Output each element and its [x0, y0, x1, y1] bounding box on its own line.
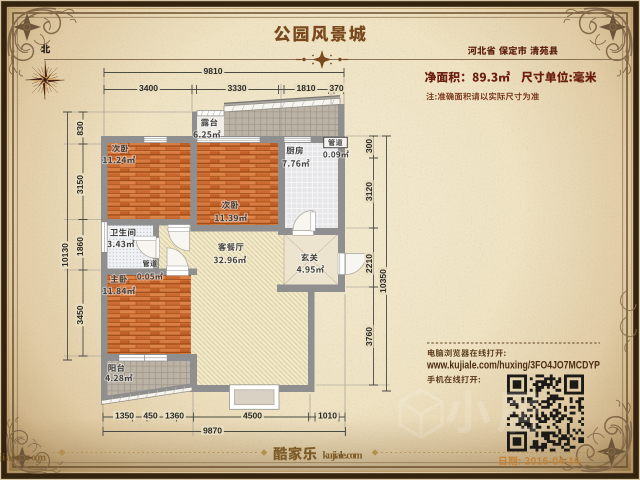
svg-text:300: 300	[364, 139, 374, 154]
svg-text:4500: 4500	[243, 410, 262, 420]
svg-text:1360: 1360	[165, 410, 184, 420]
svg-text:kujiale.com: kujiale.com	[323, 451, 363, 462]
svg-text:3150: 3150	[75, 175, 85, 194]
svg-text:3330: 3330	[227, 83, 246, 93]
svg-text:450: 450	[143, 410, 158, 420]
svg-text:1010: 1010	[318, 410, 337, 420]
svg-text:3760: 3760	[364, 327, 374, 346]
svg-text:www.kujiale.com/huxing/3FO4JO7: www.kujiale.com/huxing/3FO4JO7MCDYP	[426, 360, 600, 372]
svg-text:1860: 1860	[75, 237, 85, 256]
svg-text:3450: 3450	[75, 305, 85, 324]
svg-text:370: 370	[329, 83, 344, 93]
svg-text:kujiale.com: kujiale.com	[0, 453, 46, 464]
svg-text:9810: 9810	[203, 66, 222, 76]
svg-text:3400: 3400	[139, 83, 158, 93]
svg-text:10350: 10350	[378, 269, 388, 293]
svg-text:9870: 9870	[203, 425, 222, 435]
svg-text:3120: 3120	[364, 182, 374, 201]
svg-text:10130: 10130	[60, 243, 70, 267]
svg-text:830: 830	[75, 121, 85, 136]
svg-text:2210: 2210	[364, 254, 374, 273]
svg-text:1350: 1350	[115, 410, 134, 420]
svg-text:1810: 1810	[296, 83, 315, 93]
